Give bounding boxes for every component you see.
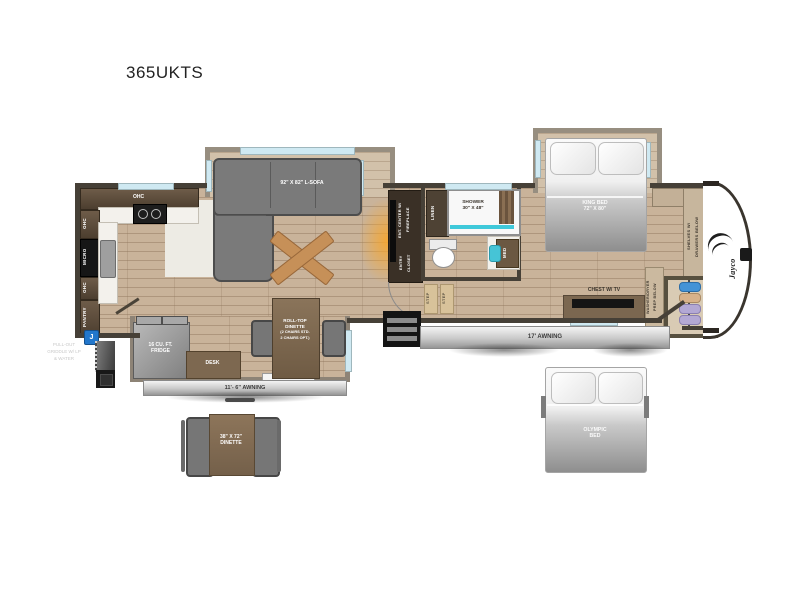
- left-wall: [75, 183, 80, 338]
- chest-label: CHEST W/ TV: [565, 288, 643, 294]
- bottom-wall-mid: [347, 318, 388, 323]
- olympic-bed-pillow-right: [598, 372, 643, 404]
- cooktop-burner-right: [151, 209, 161, 219]
- king-pin: [740, 248, 752, 261]
- shower-seat-slats: [499, 191, 514, 224]
- bath-wall-bottom: [421, 277, 521, 281]
- cooktop-burner-left: [138, 209, 148, 219]
- ohc-upper-label: OHC: [83, 212, 95, 235]
- griddle-note: PULL-OUT GRIDDLE W/ LP & WATER: [34, 341, 94, 363]
- exterior-griddle-box-inner: [100, 374, 113, 386]
- front-cap-trim-bottom: [703, 328, 719, 333]
- nightstand: [652, 188, 684, 207]
- olympic-bed-label: OLYMPIC BED: [560, 428, 630, 440]
- tv: [390, 200, 396, 262]
- olympic-bed-tab-left: [541, 396, 546, 418]
- shower-label: SHOWER 30" X 48": [447, 200, 499, 211]
- med-label: MED: [503, 243, 512, 262]
- kitchen-window: [118, 183, 174, 190]
- rolltop-dinette-label: ROLL-TOP DINETTE (2 CHAIRS STD. 2 CHAIRS…: [270, 318, 320, 341]
- bath-wall-left: [421, 188, 425, 281]
- wheel-shadow-1: [448, 343, 560, 357]
- hanger-lavender-1: [679, 304, 701, 314]
- j-port-marker-letter: J: [90, 334, 94, 341]
- fridge-door-left: [136, 316, 162, 325]
- shelves-label-line1: SHELVES W/: [687, 193, 694, 280]
- fireplace-glow: [360, 200, 390, 282]
- desk-label: DESK: [186, 361, 239, 367]
- entry-closet-label-line2: CLOSET: [407, 248, 414, 278]
- olympic-bed-tab-right: [644, 396, 649, 418]
- dinette-chair-right: [322, 320, 346, 357]
- l-sofa-back: [213, 158, 362, 216]
- ohc-lower-label: OHC: [83, 279, 95, 296]
- king-bed-sheet-fold: [547, 196, 643, 198]
- dinette-shadow: [225, 398, 255, 402]
- shelves-label-line2: DRAWERS BELOW: [695, 193, 702, 280]
- toilet-bowl: [432, 247, 455, 268]
- page-title: 365UKTS: [126, 63, 203, 83]
- wheel-shadow-2: [592, 343, 668, 357]
- step-1-label: STEP: [426, 287, 434, 309]
- king-bed-pillow-left: [550, 142, 596, 175]
- king-bed-pillow-right: [598, 142, 644, 175]
- sofa-label: 92" X 82" L-SOFA: [248, 181, 356, 187]
- ent-center-label-line2: FIREPLACE: [406, 194, 413, 246]
- bed-window-left: [535, 140, 541, 178]
- hanger-blue: [679, 282, 701, 292]
- option-dinette-rail-right: [277, 420, 281, 472]
- entry-step-tread-2: [387, 327, 417, 332]
- ohc-top-label: OHC: [80, 195, 197, 201]
- entry-closet-label-line1: ENTRY: [399, 248, 406, 278]
- shower-window: [445, 183, 512, 190]
- fridge-label: 16 CU. FT. FRIDGE: [133, 343, 188, 355]
- main-awning-label: 17' AWNING: [528, 334, 562, 341]
- floorplan-canvas: 365UKTS 16 CU. FT. FRIDGE DESK ROLL-TOP …: [0, 0, 800, 600]
- kitchen-sink: [100, 240, 116, 278]
- ent-center-label-line1: ENT. CENTER W/: [398, 194, 405, 246]
- exterior-griddle-panel: [95, 341, 115, 372]
- shower-threshold: [450, 225, 514, 229]
- olympic-bed-pillow-left: [551, 372, 596, 404]
- micro-label: MICRO: [83, 242, 95, 272]
- top-wall-right: [650, 183, 708, 188]
- pantry-label: PANTRY: [83, 302, 95, 333]
- fridge-door-right: [162, 316, 188, 325]
- bath-sink: [489, 245, 501, 262]
- option-dinette-label: 38" X 72" DINETTE: [205, 435, 257, 447]
- hanger-lavender-2: [679, 315, 701, 325]
- entry-step-tread-1: [387, 318, 417, 323]
- chest-tv-screen: [572, 299, 634, 308]
- olympic-bed-sheet-fold: [547, 404, 643, 406]
- linen-label: LINEN: [431, 194, 442, 231]
- bottom-wall-right: [421, 318, 662, 323]
- option-dinette-rail-left: [181, 420, 185, 472]
- l-sofa-seam3: [217, 215, 266, 216]
- king-bed-label: KING BED 72" X 80": [560, 201, 630, 213]
- front-cap-trim-top: [703, 181, 719, 186]
- step-2-label: STEP: [442, 287, 450, 309]
- slide-window: [345, 330, 352, 372]
- entry-step-tread-3: [387, 336, 417, 341]
- option-dinette-bench-right: [252, 417, 280, 477]
- sofa-slide-window: [240, 147, 355, 155]
